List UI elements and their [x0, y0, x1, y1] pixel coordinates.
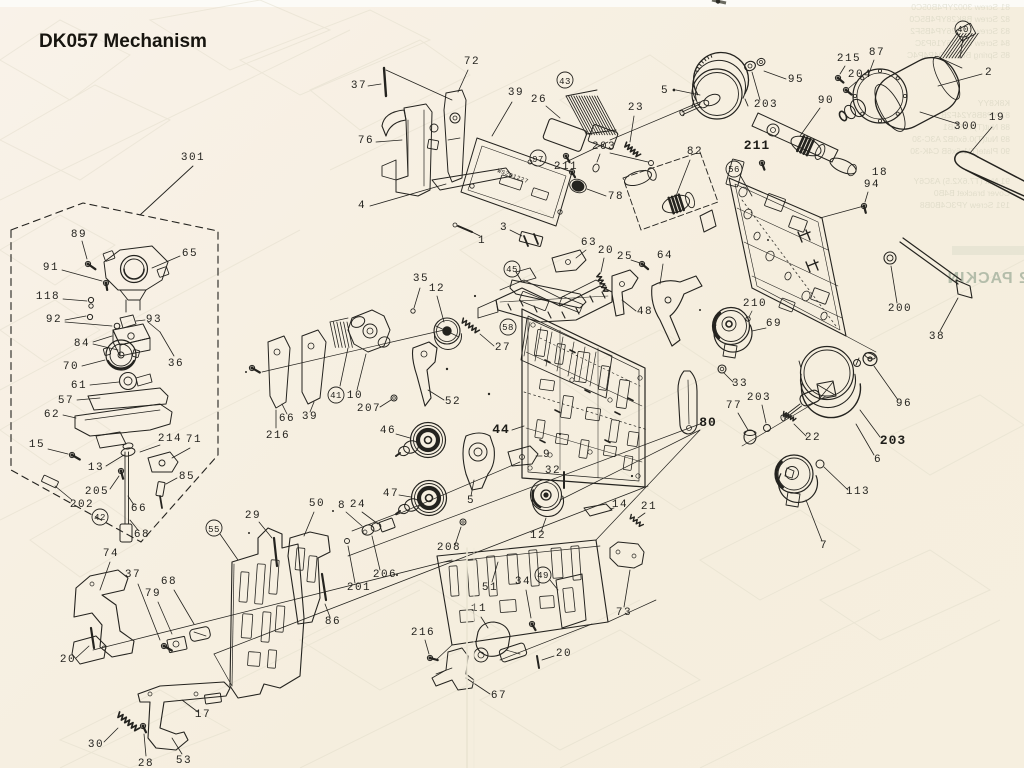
svg-text:67: 67	[491, 690, 507, 702]
svg-text:215: 215	[837, 53, 861, 65]
svg-text:40: 40	[957, 25, 969, 35]
svg-text:33: 33	[732, 378, 748, 390]
svg-text:7: 7	[820, 540, 828, 552]
svg-text:207: 207	[357, 403, 381, 415]
svg-text:9: 9	[543, 449, 551, 461]
svg-text:43: 43	[559, 77, 571, 87]
svg-text:52: 52	[445, 396, 461, 408]
svg-text:18: 18	[872, 167, 888, 179]
svg-text:70: 70	[63, 361, 79, 373]
svg-text:210: 210	[743, 298, 767, 310]
svg-text:37: 37	[351, 80, 367, 92]
svg-text:63: 63	[581, 237, 597, 249]
svg-text:50: 50	[309, 498, 325, 510]
svg-text:58: 58	[502, 323, 514, 333]
svg-text:87: 87	[869, 47, 885, 59]
svg-text:39: 39	[508, 87, 524, 99]
svg-text:27: 27	[495, 342, 511, 354]
svg-text:56: 56	[728, 165, 740, 175]
svg-text:34: 34	[515, 576, 531, 588]
svg-text:74: 74	[103, 548, 119, 560]
svg-text:216: 216	[266, 430, 290, 442]
svg-text:8: 8	[338, 500, 346, 512]
svg-text:89 Nut(T)0.6x0B2 A3C-30: 89 Nut(T)0.6x0B2 A3C-30	[912, 134, 1010, 144]
svg-text:Cover bracket B4B0: Cover bracket B4B0	[934, 188, 1010, 198]
svg-text:17: 17	[195, 709, 211, 721]
svg-text:61: 61	[71, 380, 87, 392]
svg-text:81 Screw 3002YP4B05C0: 81 Screw 3002YP4B05C0	[911, 2, 1010, 12]
svg-text:85 Spring B8C36O4P4P4C: 85 Spring B8C36O4P4P4C	[907, 50, 1010, 60]
svg-text:35: 35	[413, 273, 429, 285]
svg-text:20: 20	[598, 245, 614, 257]
svg-text:57: 57	[58, 395, 74, 407]
svg-text:1: 1	[478, 235, 486, 247]
svg-text:36: 36	[168, 358, 184, 370]
svg-text:11: 11	[471, 603, 487, 615]
svg-text:202: 202	[70, 499, 94, 511]
svg-text:25: 25	[617, 251, 633, 263]
svg-text:44: 44	[492, 422, 510, 437]
svg-text:80: 80	[699, 415, 717, 430]
svg-text:216: 216	[411, 627, 435, 639]
svg-text:22: 22	[805, 432, 821, 444]
svg-text:K8K8YY: K8K8YY	[978, 98, 1010, 108]
svg-text:49: 49	[537, 571, 549, 581]
svg-text:93: 93	[146, 314, 162, 326]
svg-text:48: 48	[637, 306, 653, 318]
svg-text:6: 6	[874, 454, 882, 466]
svg-text:23: 23	[628, 102, 644, 114]
svg-text:64: 64	[657, 250, 673, 262]
svg-text:30: 30	[88, 739, 104, 751]
svg-text:97: 97	[532, 155, 544, 165]
svg-text:191 Screw YP3C4B0B8: 191 Screw YP3C4B0B8	[920, 200, 1010, 210]
svg-text:205: 205	[85, 486, 109, 498]
svg-text:203: 203	[747, 392, 771, 404]
svg-text:12: 12	[530, 530, 546, 542]
svg-text:68: 68	[161, 576, 177, 588]
svg-text:214: 214	[158, 433, 182, 445]
svg-text:29: 29	[245, 510, 261, 522]
svg-text:208: 208	[437, 542, 461, 554]
svg-text:14: 14	[612, 499, 628, 511]
svg-text:5: 5	[467, 495, 475, 507]
svg-text:76: 76	[358, 135, 374, 147]
svg-text:201: 201	[347, 582, 371, 594]
svg-text:13: 13	[88, 462, 104, 474]
svg-text:26: 26	[531, 94, 547, 106]
svg-text:4: 4	[358, 200, 366, 212]
svg-text:46: 46	[380, 425, 396, 437]
svg-text:21: 21	[641, 501, 657, 513]
svg-text:42: 42	[94, 513, 106, 523]
svg-text:118: 118	[36, 291, 60, 303]
svg-text:65: 65	[182, 248, 198, 260]
svg-text:53: 53	[176, 755, 192, 767]
svg-text:24: 24	[350, 499, 366, 511]
svg-text:45: 45	[506, 265, 518, 275]
svg-text:92: 92	[46, 314, 62, 326]
svg-text:68: 68	[134, 529, 150, 541]
svg-text:79: 79	[145, 588, 161, 600]
svg-text:211: 211	[554, 161, 578, 173]
svg-text:20: 20	[60, 654, 76, 666]
svg-text:95: 95	[788, 74, 804, 86]
svg-text:38: 38	[929, 331, 945, 343]
svg-text:82 Screw B8K28YP4B5C0: 82 Screw B8K28YP4B5C0	[909, 14, 1010, 24]
svg-text:2: 2	[985, 67, 993, 79]
svg-text:37: 37	[125, 569, 141, 581]
svg-text:89: 89	[71, 229, 87, 241]
svg-text:82: 82	[687, 146, 703, 158]
svg-text:3: 3	[500, 222, 508, 234]
svg-text:85: 85	[179, 471, 195, 483]
svg-text:203: 203	[592, 141, 616, 153]
svg-text:10: 10	[347, 390, 363, 402]
svg-text:200: 200	[888, 303, 912, 315]
svg-text:90 Plate(T)1.6x6B C4K-30: 90 Plate(T)1.6x6B C4K-30	[910, 146, 1010, 156]
svg-text:55: 55	[208, 525, 220, 535]
svg-text:86: 86	[325, 616, 341, 628]
svg-text:72: 72	[464, 56, 480, 68]
svg-text:5: 5	[661, 85, 669, 97]
svg-text:12: 12	[429, 283, 445, 295]
svg-text:113: 113	[846, 486, 870, 498]
svg-text:69: 69	[766, 318, 782, 330]
svg-text:41: 41	[330, 391, 342, 401]
svg-text:78: 78	[608, 191, 624, 203]
svg-text:66: 66	[131, 503, 147, 515]
svg-text:32: 32	[545, 465, 561, 477]
svg-text:300: 300	[954, 121, 978, 133]
svg-text:94: 94	[864, 179, 880, 191]
svg-text:211: 211	[744, 138, 770, 153]
svg-text:203: 203	[880, 433, 906, 448]
svg-text:15: 15	[29, 439, 45, 451]
svg-text:28: 28	[138, 758, 154, 768]
svg-text:91: 91	[43, 262, 59, 274]
svg-text:77: 77	[726, 400, 742, 412]
svg-text:20: 20	[556, 648, 572, 660]
svg-text:66: 66	[279, 413, 295, 425]
svg-text:62: 62	[44, 409, 60, 421]
svg-text:47: 47	[383, 488, 399, 500]
svg-text:203: 203	[754, 99, 778, 111]
svg-text:51: 51	[482, 582, 498, 594]
svg-text:84: 84	[74, 338, 90, 350]
svg-text:39: 39	[302, 411, 318, 423]
svg-text:90: 90	[818, 95, 834, 107]
svg-text:301: 301	[181, 152, 205, 164]
svg-text:19: 19	[989, 112, 1005, 124]
svg-text:71: 71	[186, 434, 202, 446]
